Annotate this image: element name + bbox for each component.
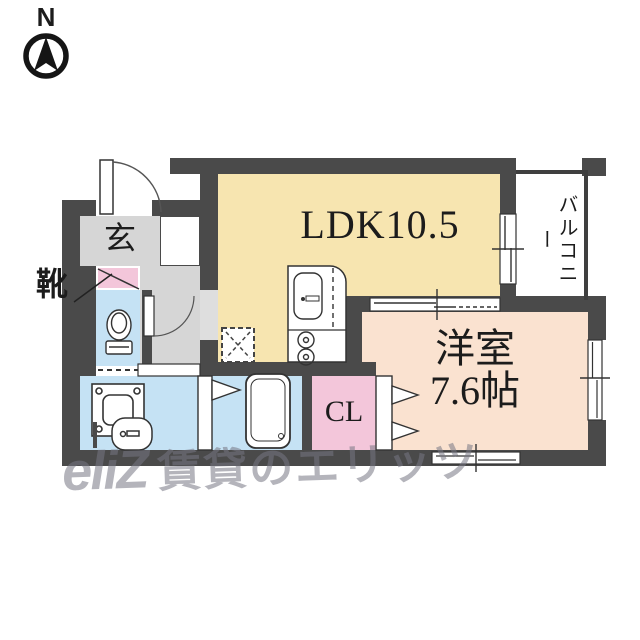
- wall-western-right-top: [588, 296, 606, 340]
- ldk-label: LDK10.5: [260, 204, 500, 246]
- wall-entry-stub-left: [62, 200, 96, 216]
- wall-ldk-right-stub-bottom: [500, 284, 516, 298]
- wall-left: [62, 200, 80, 466]
- wall-entry-stub-right: [152, 200, 200, 216]
- balcony-rail-right: [584, 170, 588, 300]
- western-room-label: 洋室 7.6帖: [380, 328, 570, 412]
- wall-bottom: [62, 450, 606, 466]
- north-label: N: [22, 4, 70, 31]
- wall-hall-ldk-upper: [200, 268, 218, 290]
- wall-entrance-ldk: [200, 158, 218, 268]
- hall-opening: [200, 290, 218, 340]
- western-room-size: 7.6帖: [380, 370, 570, 412]
- wall-ldk-right-stub-top: [500, 158, 516, 216]
- compass-icon: [22, 32, 70, 80]
- kitchen-floor: [218, 296, 346, 362]
- wall-toilet-hall: [142, 290, 152, 366]
- shoes-label: 靴: [30, 268, 74, 302]
- wall-top: [170, 158, 516, 174]
- balcony-rail-top: [516, 170, 584, 174]
- toilet-room-floor: [96, 290, 142, 366]
- closet-label: CL: [312, 396, 376, 428]
- wall-western-top: [346, 296, 606, 312]
- bathroom-floor: [212, 376, 302, 450]
- floor-plan: N LDK10.5 洋室 7.6帖 CL 玄 靴 バルコニー eliZ賃貸のエリ…: [0, 0, 640, 640]
- storage-area: [160, 216, 200, 266]
- washroom-floor: [80, 376, 198, 450]
- shoe-box: [96, 266, 140, 290]
- balcony-label: バルコニー: [534, 184, 576, 296]
- western-room-name: 洋室: [380, 328, 570, 370]
- entrance-label: 玄: [80, 222, 160, 256]
- wall-left-inner: [80, 266, 96, 376]
- wall-bath-closet: [302, 362, 312, 450]
